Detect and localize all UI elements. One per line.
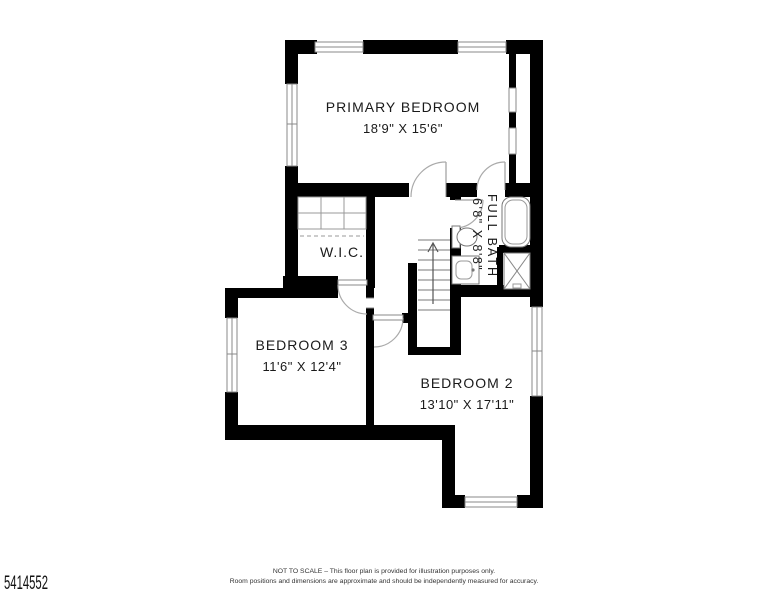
wic-door bbox=[338, 280, 367, 314]
bedroom2-dimensions: 13'10" X 17'11" bbox=[420, 397, 514, 412]
wall-segment bbox=[509, 44, 516, 88]
window bbox=[287, 84, 297, 166]
bedroom3-dimensions: 11'6" X 12'4" bbox=[262, 359, 341, 374]
wall-segment bbox=[225, 288, 333, 298]
wall-segment bbox=[225, 288, 238, 318]
staircase bbox=[418, 240, 450, 310]
bedroom2-label: BEDROOM 2 bbox=[420, 375, 513, 391]
wall-segment bbox=[285, 183, 409, 197]
wic-label: W.I.C. bbox=[320, 244, 364, 260]
floor-plan-canvas: PRIMARY BEDROOM 18'9" X 15'6" FULL BATH … bbox=[0, 0, 768, 594]
window bbox=[458, 42, 506, 52]
full-bath-dimensions: 6'8" X 8'8" bbox=[470, 198, 484, 271]
wall-segment bbox=[517, 495, 543, 508]
primary-bedroom-dimensions: 18'9" X 15'6" bbox=[363, 121, 443, 136]
window bbox=[465, 497, 517, 507]
primary-bath-connecting-door bbox=[477, 162, 505, 190]
wic-closet-shelving bbox=[298, 197, 366, 236]
wall-segment bbox=[366, 288, 374, 298]
wall-segment bbox=[366, 308, 374, 425]
window bbox=[532, 307, 542, 396]
bedroom2-door bbox=[373, 315, 403, 347]
stairs-up-arrow-icon bbox=[428, 243, 438, 304]
wall-segment bbox=[530, 40, 543, 307]
wall-segment bbox=[366, 195, 375, 288]
wall-segment bbox=[363, 40, 458, 54]
bedroom3-doorway bbox=[366, 298, 374, 308]
wall-segment bbox=[450, 183, 461, 200]
listing-id: 5414552 bbox=[4, 573, 48, 594]
window bbox=[227, 318, 237, 392]
primary-bedroom-label: PRIMARY BEDROOM bbox=[326, 99, 481, 115]
window bbox=[315, 42, 363, 52]
bathtub bbox=[502, 197, 530, 247]
disclaimer-line-2: Room positions and dimensions are approx… bbox=[230, 578, 539, 585]
disclaimer-line-1: NOT TO SCALE – This floor plan is provid… bbox=[273, 568, 495, 575]
shower bbox=[504, 253, 530, 289]
full-bath-label: FULL BATH bbox=[485, 194, 499, 278]
wall-segment bbox=[442, 495, 465, 508]
footer: 5414552 NOT TO SCALE – This floor plan i… bbox=[4, 568, 538, 594]
primary-bedroom-door bbox=[411, 162, 446, 197]
wall-segment bbox=[509, 154, 516, 188]
wall-segment bbox=[325, 278, 338, 298]
bedroom3-label: BEDROOM 3 bbox=[255, 337, 348, 353]
floor-plan-page: PRIMARY BEDROOM 18'9" X 15'6" FULL BATH … bbox=[0, 0, 768, 594]
wall-segment bbox=[408, 347, 461, 355]
wall-segment bbox=[285, 40, 298, 84]
wall-segment bbox=[225, 425, 455, 440]
wall-segment bbox=[408, 263, 417, 355]
wall-segment bbox=[509, 112, 516, 128]
wall-segment bbox=[530, 396, 543, 508]
